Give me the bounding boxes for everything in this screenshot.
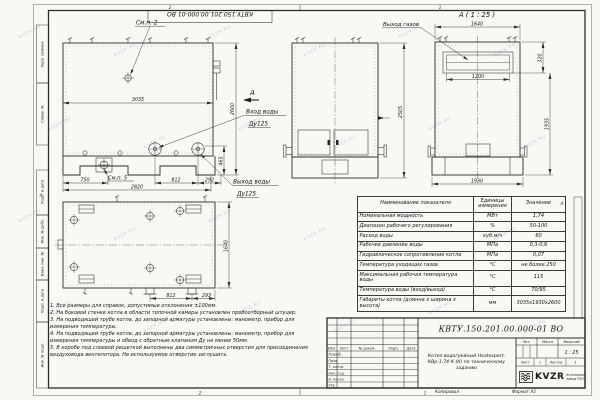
logo-coil-icon [519,370,533,384]
note-item: 2. На боковой стенке котла в области топ… [50,310,324,317]
inspection-point-marker [122,72,134,84]
tb-col-izm: Изм. [328,347,336,351]
spec-row: Рабочее давление воды МПа 0,3-0,6 [358,241,566,251]
dim-side-edge: 292 [205,178,214,184]
spec-cell-name: Рабочее давление воды [358,241,474,251]
tb-col-data: Дата [406,347,416,351]
callout-see-item-5: См.п. 5 [108,176,128,182]
base-hatch [96,158,112,172]
spec-cell-units: мм [474,296,512,312]
dim-plan-edge: 293 [202,293,211,299]
svg-text:Ду125: Ду125 [248,122,268,128]
tb-row-tkontr: Т. контр. [329,365,345,369]
spec-cell-name: Габариты котла (длинна х ширина х высота… [358,296,474,312]
tb-col-podp: Подп. [388,347,398,351]
note-item: 4. На подводящей трубе котла, до запорно… [50,331,324,344]
water-outlet-label: Выход воды Ду125 [201,154,279,198]
section-letter: А [249,89,255,97]
tb-row-razrab: Разраб. [329,353,342,357]
dim-side-support-height: 465 [219,156,225,165]
tb-row-utv: Утв. [329,384,336,388]
spec-cell-name: Номинальная мощность [358,212,474,222]
tb-sheet-label: Лист [520,360,531,364]
spec-table-body: Номинальная мощность МВт 1,74 Диапазон р… [358,212,566,311]
spec-cell-name: Гидравлическое сопротивление котла [358,251,474,261]
spec-row: Диапазон рабочего регулирования % 50-100 [358,222,566,232]
spec-cell-value: 115 [512,271,566,287]
note-item: 5. В коробе под слоевой решеткой выполне… [50,345,324,358]
spec-header-units: Единицы измерения [474,197,512,213]
zone-top-left: 2 [169,5,172,11]
margin-label: Подп. и дата [41,180,45,204]
dim-side-height: 2600 [230,103,236,115]
tb-doc-number: КВТУ.150.201.00.000-01 ВО [438,325,564,334]
spec-table: Наименование показателя Единицы измерени… [357,196,566,312]
spec-row: Расход воды куб.м/ч 60 [358,232,566,242]
margin-label: Перв. примен. [41,41,45,68]
spec-cell-value: 3035х1930х2600 [512,296,566,312]
svg-text:Вход воды: Вход воды [246,110,279,116]
spec-cell-value: 0,07 [512,251,566,261]
spec-header-value: Значение [512,197,566,213]
margin-label: Инв. № подл. [41,343,45,368]
margin-label: Взам. инв. № [41,252,45,277]
dim-back-base-width: 1930 [471,179,483,185]
note-item: 3. На подводящей трубе котла, до запорно… [50,317,324,330]
spec-cell-value: не более 250 [512,261,566,271]
spec-cell-units: МПа [474,251,512,261]
dim-back-top-width: 1640 [471,22,483,28]
spec-header-row: Наименование показателя Единицы измерени… [358,197,566,213]
spec-cell-units: % [474,222,512,232]
spec-row: Температура уходящих газов °С не более 2… [358,261,566,271]
tb-row-nkontr: Н. контр. [329,378,345,382]
spec-cell-value: 60 [512,232,566,242]
spec-cell-value: 1,74 [512,212,566,222]
spec-row: Гидравлическое сопротивление котла МПа 0… [358,251,566,261]
tb-scale-label: Масштаб [563,340,579,344]
spec-cell-name: Максимальная рабочая температура воды [358,271,474,287]
tb-lit-label: Лит. [522,340,531,344]
spec-row: Максимальная рабочая температура воды °С… [358,271,566,287]
dim-back-opening-height: 320 [538,53,544,62]
dim-back-body-height: 1935 [545,118,551,130]
tb-sheets-label: Листов [549,360,563,364]
dim-side-base: 2820 [131,185,143,191]
tb-col-list: Лист [339,347,350,351]
front-view: 2505 [284,37,408,186]
spec-cell-name: Температура уходящих газов [358,261,474,271]
margin-label-cells: Перв. примен. Справ. № Подп. и дата Инв.… [37,25,49,388]
dim-plan-flange-span: 812 [166,293,175,299]
notes-block: 1. Все размеры для справок, допустимые о… [50,303,324,359]
tb-sheet-value: 1 [539,360,541,364]
plan-view: 1640 812 293 [55,195,232,301]
tb-row-prov: Пров. [329,359,339,363]
back-view: А ( 1 : 25 ) 1640 1200 320 1935 19 [382,11,553,187]
spec-cell-name: Температура воды (вход/выход) [358,286,474,296]
margin-label: Справ. № [41,105,45,123]
spec-cell-name: Расход воды [358,232,474,242]
tb-sheets-value: 1 [574,360,576,364]
tb-scale-value: 1 : 25 [565,350,579,356]
margin-label: Подп. и дата [41,289,45,313]
spec-cell-name: Диапазон рабочего регулирования [358,222,474,232]
callout-see-item-2: См.п. 2 [136,21,158,27]
logo-caption: Котельный завод РЭП [566,373,585,381]
water-inlet-flange [148,142,162,156]
svg-text:Ду125: Ду125 [236,192,256,198]
logo-text: KVZR [535,372,564,382]
spec-header-name: Наименование показателя [358,197,474,213]
section-view-label: А ( 1 : 25 ) [458,11,495,19]
tb-mass-label: Масса [542,340,553,344]
spec-cell-value: 50-100 [512,222,566,232]
spec-cell-units: куб.м/ч [474,232,512,242]
zone-top-right: 1 [439,5,442,11]
zone-bottom-right: 1 [424,391,427,397]
plan-flange-symbols [68,205,186,286]
copied-label: Копировал [435,389,459,394]
svg-text:Выход воды: Выход воды [233,180,270,186]
side-bracket [213,61,220,100]
spec-cell-units: МПа [474,241,512,251]
water-outlet-flange [191,142,205,156]
dim-plan-depth: 1640 [224,240,230,252]
company-logo: KVZR Котельный завод РЭП [517,367,584,387]
top-stamp-number: КВТУ.150.201.00.000-01 ВО [167,10,253,17]
furnace-door-left [298,130,330,155]
side-view: 3035 2600 750 2820 812 292 465 См.п. 2 С… [63,21,286,198]
spec-cell-units: °С [474,261,512,271]
spec-row: Температура воды (вход/выход) °С 70/95 [358,286,566,296]
top-stamp: КВТУ.150.201.00.000-01 ВО [148,10,272,22]
spec-cell-units: °С [474,271,512,287]
dim-side-width: 3035 [132,97,144,103]
spec-cell-value: 0,3-0,6 [512,241,566,251]
gas-outlet-label: Выход газов [382,22,468,60]
zone-bottom-left: 2 [199,391,202,397]
tb-row-nachotd: Нач. отд. [329,371,345,375]
dim-side-foot: 750 [80,178,89,184]
svg-text:Выход газов: Выход газов [383,22,419,28]
section-arrow: А [243,89,259,102]
spec-cell-units: МВт [474,212,512,222]
dim-side-flange-span: 812 [171,178,180,184]
margin-label: Инв. № дубл. [41,219,45,244]
spec-row: Габариты котла (длинна х ширина х высота… [358,296,566,312]
note-item: 1. Все размеры для справок, допустимые о… [50,303,324,310]
spec-row: Номинальная мощность МВт 1,74 [358,212,566,222]
tb-col-docnum: № докум. [358,347,376,351]
water-inlet-label: Вход воды Ду125 [159,110,287,148]
tb-description: Котел водогрейный Heatexpert-КВр-1,74-К … [419,339,514,387]
drawing-sheet: 2 1 2 1 А А Перв. примен. Справ. № Подп.… [0,0,600,400]
spec-cell-units: °С [474,286,512,296]
gas-outlet-opening [443,52,513,73]
spec-cell-value: 70/95 [512,286,566,296]
dim-front-height: 2505 [398,106,404,118]
format-label: Формат А3 [512,389,536,394]
dim-back-opening-width: 1200 [472,74,484,80]
furnace-door-right [334,130,368,155]
